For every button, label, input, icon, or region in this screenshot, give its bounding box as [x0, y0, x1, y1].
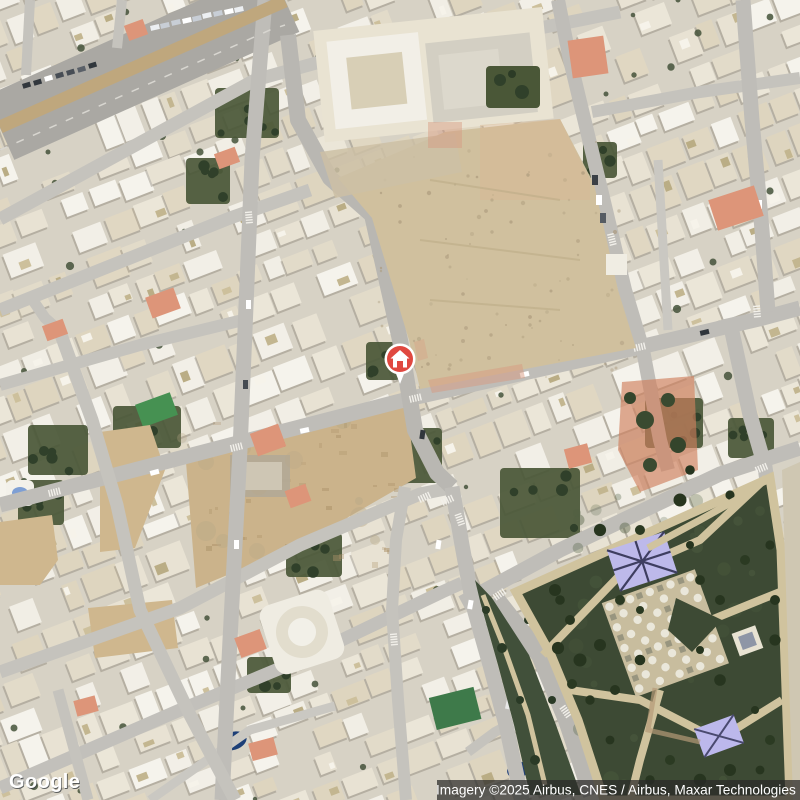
- svg-text:Imagery ©2025 Airbus, CNES / A: Imagery ©2025 Airbus, CNES / Airbus, Max…: [436, 783, 796, 798]
- svg-text:Google: Google: [9, 771, 80, 793]
